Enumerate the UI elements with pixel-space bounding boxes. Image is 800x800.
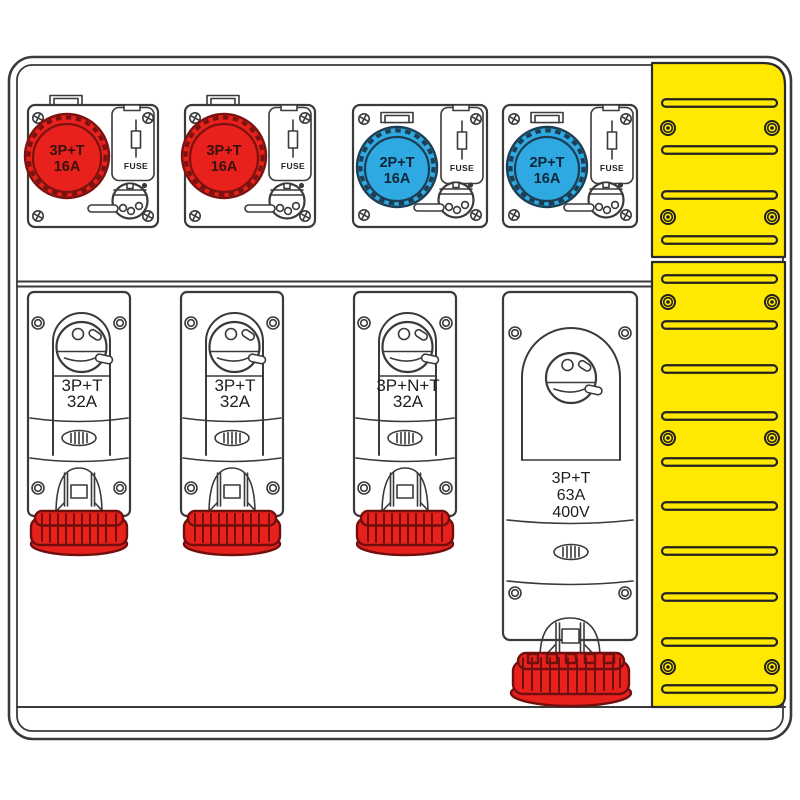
socket-unit-16a-blue-1: 2P+T 16A FUSE [353,105,487,227]
svg-text:32A: 32A [393,392,424,411]
fuse-label: FUSE [600,163,624,173]
socket-unit-16a-red-1: 3P+T 16A FUSE [25,96,158,228]
fuse-label: FUSE [124,161,148,171]
svg-text:3P+T: 3P+T [552,470,591,487]
svg-text:400V: 400V [552,504,590,521]
screw-icon [509,587,521,599]
svg-text:3P+T: 3P+T [206,143,241,159]
fuse-label: FUSE [281,161,305,171]
socket-unit-16a-red-2: 3P+T 16A FUSE [182,96,315,228]
svg-text:63A: 63A [557,487,586,504]
screw-icon [619,587,631,599]
fuse-label: FUSE [450,163,474,173]
svg-text:2P+T: 2P+T [529,155,564,171]
svg-text:16A: 16A [54,159,81,175]
diagram-canvas: 3P+T 16A FUSE 3P+T 16A FUSE 2P+T 16A FUS… [0,0,800,800]
socket-unit-32a-2: 3P+T 32A [181,292,283,555]
svg-text:32A: 32A [220,392,251,411]
socket-unit-16a-blue-2: 2P+T 16A FUSE [503,105,637,227]
svg-text:16A: 16A [534,171,561,187]
socket-unit-32a-1: 3P+T 32A [28,292,130,555]
screw-icon [509,327,521,339]
svg-text:3P+T: 3P+T [49,143,84,159]
svg-text:16A: 16A [384,171,411,187]
cable-duct [652,63,785,707]
screw-icon [619,327,631,339]
duct-cover-top [652,63,785,257]
svg-text:32A: 32A [67,392,98,411]
svg-text:2P+T: 2P+T [379,155,414,171]
distribution-board-diagram: 3P+T 16A FUSE 3P+T 16A FUSE 2P+T 16A FUS… [0,0,800,800]
svg-text:16A: 16A [211,159,238,175]
vent-grille-icon [554,545,588,560]
protective-cap-63a [511,653,631,706]
socket-unit-32a-3: 3P+N+T 32A [354,292,456,555]
